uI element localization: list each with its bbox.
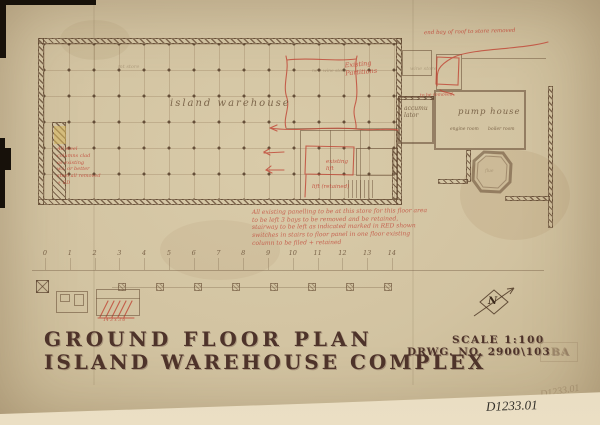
inner-heavy-wall <box>392 148 398 199</box>
pier <box>270 283 278 291</box>
boiler-room-label: boiler room <box>488 127 515 132</box>
scale-bar-numbers-item: 11 <box>313 249 323 257</box>
catalog-stamp: D1233.01 <box>486 397 538 415</box>
annex-room-a <box>402 50 432 76</box>
accumulator-label-l2: lator <box>404 112 428 119</box>
scanned-drawing: island warehouse accumu lator pump house… <box>0 0 600 425</box>
island-warehouse-label: island warehouse <box>170 98 291 109</box>
red-note-left-block-item: as existing <box>57 160 101 167</box>
scale-bar-numbers-item: 13 <box>362 249 372 257</box>
scale-bar-numbers-item: 1 <box>65 249 75 257</box>
scale-bar-numbers-item: 10 <box>288 249 298 257</box>
red-note-partitions: Existing Partitions <box>344 60 377 78</box>
red-note-center-block-item: column to be filed + retained <box>252 238 427 248</box>
lift-a-l1: existing <box>326 159 348 166</box>
red-note-left-block-item: columns clad <box>57 153 101 160</box>
pump-house-room <box>434 90 526 150</box>
scale-bar-numbers: 01234567891011121314 <box>40 249 397 257</box>
faint-store-label: mt store <box>118 64 139 70</box>
octagon-label: flue <box>485 169 494 174</box>
drwg-number: DRWG. NO. 2900\103 <box>407 346 551 358</box>
scale-bar-numbers-item: 4 <box>139 249 149 257</box>
far-east-wall <box>548 86 553 228</box>
scale-bar-line <box>32 270 544 271</box>
lift-shaft <box>356 148 394 176</box>
detail-plan-a-inner2 <box>74 294 84 306</box>
paper-sheet: island warehouse accumu lator pump house… <box>0 0 600 425</box>
scan-edge-left-upper <box>0 0 6 58</box>
scan-edge-top <box>0 0 96 5</box>
pencil-mid-note: new wine store <box>312 69 347 74</box>
scale-bar-numbers-item: 5 <box>164 249 174 257</box>
paper-stain <box>460 150 570 240</box>
accumulator-label: accumu lator <box>404 105 428 119</box>
accumulator-label-l1: accumu <box>404 105 428 112</box>
annex-room-b <box>436 54 462 90</box>
scale-bar-numbers-item: 0 <box>40 249 50 257</box>
annex-wall-h <box>438 179 468 184</box>
scale-bar-numbers-item: 9 <box>263 249 273 257</box>
red-note-lift-a: existing lift <box>326 159 348 172</box>
red-note-lift-b: lift (retained) <box>312 184 349 191</box>
pier <box>118 283 126 291</box>
scale-bar-numbers-item: 6 <box>189 249 199 257</box>
pump-house-label: pump house <box>458 107 521 117</box>
detail-plan-b-line <box>96 298 140 299</box>
pier <box>156 283 164 291</box>
scale-bar-numbers-item: 14 <box>387 249 397 257</box>
red-note-left-block-item: All steel <box>57 146 101 153</box>
annex-wall-v <box>466 150 471 182</box>
engine-room-label: engine room <box>450 127 479 132</box>
scale-label: SCALE 1:100 <box>452 334 545 346</box>
highlight-box <box>54 126 66 144</box>
detail-plan-b <box>96 289 140 316</box>
red-note-top-right: end bay of roof to store removed <box>424 28 516 37</box>
pier <box>346 283 354 291</box>
red-note-center-block: All existing panelling to be at this sto… <box>252 207 428 247</box>
scale-bar-numbers-item: 2 <box>90 249 100 257</box>
title-line1: GROUND FLOOR PLAN <box>44 327 373 351</box>
pier <box>194 283 202 291</box>
red-note-left-block-item: w.i. or better <box>57 166 101 173</box>
detail-plan-a-inner1 <box>60 294 70 302</box>
scale-bar-numbers-item: 12 <box>337 249 347 257</box>
accumulator-room <box>398 96 434 144</box>
red-note-left-block: All steelcolumns cladas existingw.i. or … <box>57 146 101 187</box>
pier <box>232 283 240 291</box>
scale-bar-numbers-item: 3 <box>114 249 124 257</box>
scale-bar-numbers-item: 7 <box>213 249 223 257</box>
red-note-left-block-item: steel all removed <box>57 173 101 180</box>
red-note-left-block-item: + SD <box>57 180 101 187</box>
red-dim-note: 14'3 x 3'6 <box>103 318 125 323</box>
pier <box>384 283 392 291</box>
red-note-removed: to be removed <box>420 92 453 99</box>
stamp-box <box>540 342 578 362</box>
pier <box>308 283 316 291</box>
scale-bar-numbers-item: 8 <box>238 249 248 257</box>
scan-edge-left-nub <box>0 148 11 170</box>
inner-wall-h <box>286 128 398 129</box>
faint-wine-store-label: wine store <box>410 66 437 72</box>
octagon-east-wall <box>505 196 550 201</box>
stair-treads <box>348 180 374 198</box>
crossed-square-detail <box>36 280 49 293</box>
annex-top-wall <box>462 58 546 59</box>
compass-n-label: N <box>488 296 497 307</box>
lift-a-l2: lift <box>326 166 348 173</box>
